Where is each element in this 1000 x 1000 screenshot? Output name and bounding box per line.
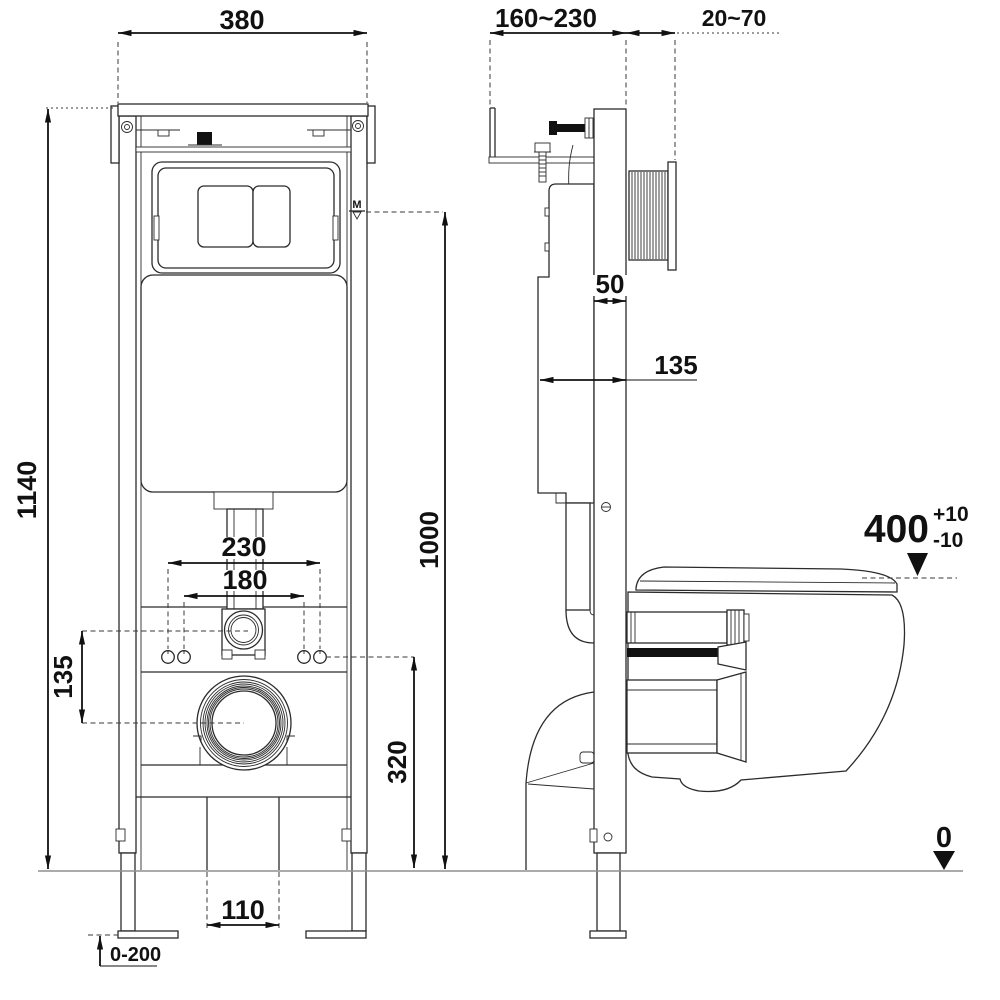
flush-button-small	[253, 186, 290, 247]
filling-valve-connector	[197, 132, 212, 145]
side-view	[489, 108, 905, 938]
plate-clip-right	[333, 216, 338, 240]
dim-profile-depth-label: 50	[596, 269, 625, 299]
foot-plate-left	[118, 931, 178, 938]
dim-frame-width-label: 380	[219, 5, 264, 35]
flush-bend	[566, 503, 594, 643]
dim-drain-opening-label: 110	[221, 895, 265, 925]
flush-plate	[152, 162, 340, 273]
dim-hole-spacing-outer-label: 230	[221, 532, 266, 562]
top-rail	[111, 104, 375, 163]
drain-bend	[526, 692, 594, 870]
dim-drain-height-label: 320	[382, 740, 412, 783]
bowl-height-level-triangle	[907, 553, 928, 576]
dim-frame-depth-label: 160~230	[495, 3, 597, 33]
upper-crossbar	[136, 147, 351, 152]
dim-wall-finish-depth: 20~70	[626, 5, 782, 160]
post-foot-plate	[590, 931, 626, 938]
rail-notch-left	[158, 130, 169, 136]
sleeve-flange	[668, 162, 676, 270]
rail-notch-right	[313, 130, 324, 136]
foot-plate-right	[306, 931, 366, 938]
dim-bowl-height-tol-plus: +10	[933, 503, 969, 526]
floor-level-marker: 0	[933, 822, 955, 870]
corrugated-sleeve	[629, 162, 676, 270]
leg-lock-clip-left	[116, 829, 125, 841]
fill-hose	[569, 145, 573, 190]
floor-level-triangle	[933, 851, 955, 870]
dim-bowl-height-label: 400	[864, 508, 929, 551]
dim-wall-finish-depth-label: 20~70	[702, 5, 767, 31]
bracket-screw-left	[122, 122, 133, 133]
dim-total-height: 1140	[12, 108, 115, 869]
wall-bracket	[489, 108, 597, 190]
drain-pipe-side	[627, 672, 746, 762]
flush-connector-pipe	[627, 610, 749, 645]
front-view	[111, 104, 375, 938]
leg-screw-hole	[604, 833, 612, 841]
dim-total-height-label: 1140	[12, 461, 42, 520]
bracket-screw-right	[353, 121, 364, 132]
dim-hole-spacing-inner-label: 180	[222, 565, 267, 595]
dim-flush-level-label: 1000	[414, 511, 444, 569]
dim-drain-opening: 110	[207, 895, 279, 925]
dim-cistern-depth-label: 135	[654, 350, 697, 380]
dim-bowl-height: 400 +10 -10	[862, 503, 969, 578]
dim-bowl-height-tol-minus: -10	[933, 529, 963, 552]
post-leg-clip	[590, 829, 597, 842]
dim-frame-depth: 160~230	[490, 3, 626, 107]
dim-frame-width: 380	[118, 5, 367, 103]
dim-profile-depth: 50	[592, 269, 628, 301]
bracket-bolt-head	[549, 121, 557, 135]
dim-inlet-drain-offset-label: 135	[48, 655, 78, 698]
inlet-connection	[222, 609, 265, 659]
dim-foot-adjustment-label: 0-200	[110, 944, 161, 966]
concealed-cistern-front	[141, 275, 347, 492]
dim-foot-adjustment: 0-200	[88, 935, 161, 966]
level-mark-m: M	[352, 199, 361, 211]
bracket-bolt	[557, 124, 585, 132]
technical-drawing-page: 380 1140 M 1000 230	[0, 0, 1000, 1000]
cistern-outlet-neck	[214, 492, 273, 509]
toilet-seat	[636, 567, 897, 592]
flush-button-large	[198, 186, 253, 247]
concealed-cistern-side	[538, 184, 594, 503]
leg-lock-clip-right	[342, 829, 351, 841]
installation-frame-drawing: 380 1140 M 1000 230	[0, 0, 1000, 1000]
floor-level-label: 0	[936, 822, 952, 854]
dim-drain-height: 320	[326, 657, 414, 868]
plate-clip-left	[154, 216, 159, 240]
frame-post	[594, 109, 626, 853]
